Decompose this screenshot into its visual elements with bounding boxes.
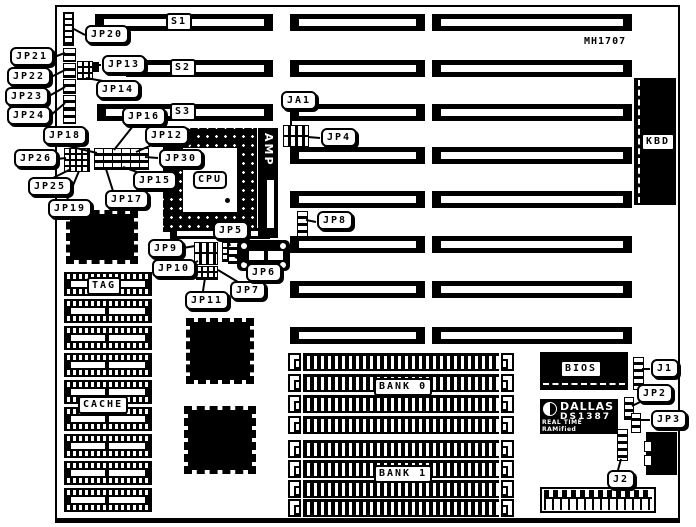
callout-jp25: JP25 xyxy=(28,177,72,196)
callout-jp3: JP3 xyxy=(651,410,687,429)
callout-jp2: JP2 xyxy=(637,384,673,403)
callout-jp14: JP14 xyxy=(96,80,140,99)
callout-j1: J1 xyxy=(651,359,679,378)
callout-jp11: JP11 xyxy=(185,291,229,310)
callout-jp12: JP12 xyxy=(145,126,189,145)
callout-jp7: JP7 xyxy=(230,281,266,300)
callout-jp9: JP9 xyxy=(148,239,184,258)
motherboard-diagram: MH1707 S1 S2 S3 CPU AMP xyxy=(0,0,696,527)
callout-jp22: JP22 xyxy=(7,67,51,86)
callout-jp21: JP21 xyxy=(10,47,54,66)
callout-jp30: JP30 xyxy=(159,149,203,168)
callout-jp19: JP19 xyxy=(48,199,92,218)
callout-jp15: JP15 xyxy=(133,171,177,190)
callout-jp18: JP18 xyxy=(43,126,87,145)
callout-jp26: JP26 xyxy=(14,149,58,168)
callout-jp23: JP23 xyxy=(5,87,49,106)
callout-jp6: JP6 xyxy=(246,263,282,282)
callout-jp10: JP10 xyxy=(152,259,196,278)
callout-jp24: JP24 xyxy=(7,106,51,125)
callout-jp8: JP8 xyxy=(317,211,353,230)
callout-jp17: JP17 xyxy=(105,190,149,209)
callout-ja1: JA1 xyxy=(281,91,317,110)
callout-jp5: JP5 xyxy=(213,221,249,240)
callout-j2: J2 xyxy=(607,470,635,489)
callout-jp13: JP13 xyxy=(102,55,146,74)
callout-jp20: JP20 xyxy=(85,25,129,44)
callout-jp16: JP16 xyxy=(122,107,166,126)
callout-jp4: JP4 xyxy=(321,128,357,147)
